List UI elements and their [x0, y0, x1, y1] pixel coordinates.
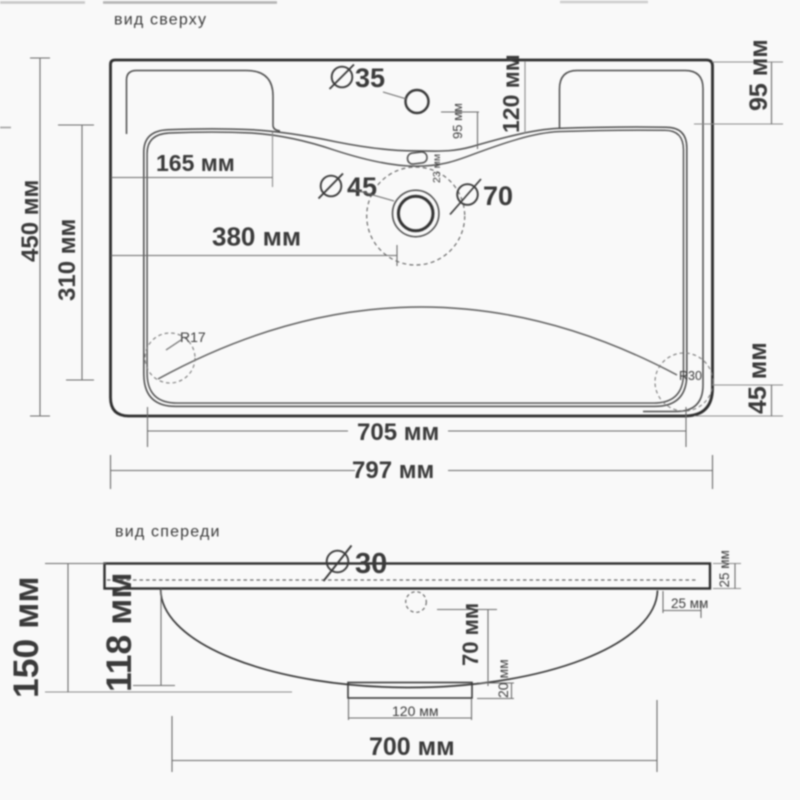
svg-text:95 мм: 95 мм: [745, 39, 773, 111]
svg-text:30: 30: [355, 548, 387, 580]
svg-text:вид спереди: вид спереди: [115, 524, 221, 541]
svg-text:45 мм: 45 мм: [744, 342, 772, 414]
svg-text:45: 45: [347, 172, 377, 202]
svg-text:35: 35: [355, 63, 385, 93]
svg-text:95 мм: 95 мм: [450, 103, 465, 139]
svg-text:20 мм: 20 мм: [495, 659, 511, 698]
svg-text:25 мм: 25 мм: [671, 596, 708, 611]
svg-text:450 мм: 450 мм: [17, 180, 44, 262]
svg-text:120 мм: 120 мм: [498, 54, 524, 133]
svg-text:23 мм: 23 мм: [431, 154, 443, 183]
svg-text:R17: R17: [180, 329, 206, 345]
svg-text:25 мм: 25 мм: [717, 550, 732, 587]
svg-text:150 мм: 150 мм: [6, 576, 46, 698]
svg-text:380 мм: 380 мм: [212, 222, 301, 252]
svg-text:700 мм: 700 мм: [369, 733, 455, 761]
svg-text:70: 70: [483, 181, 513, 211]
svg-text:797 мм: 797 мм: [352, 457, 434, 484]
svg-text:вид сверху: вид сверху: [114, 12, 207, 29]
svg-text:310 мм: 310 мм: [54, 219, 81, 301]
svg-text:70 мм: 70 мм: [458, 603, 483, 666]
svg-text:120 мм: 120 мм: [392, 703, 439, 719]
svg-text:118 мм: 118 мм: [99, 572, 139, 692]
svg-text:165 мм: 165 мм: [156, 150, 235, 176]
svg-text:R30: R30: [679, 369, 702, 383]
svg-text:705 мм: 705 мм: [357, 419, 439, 446]
